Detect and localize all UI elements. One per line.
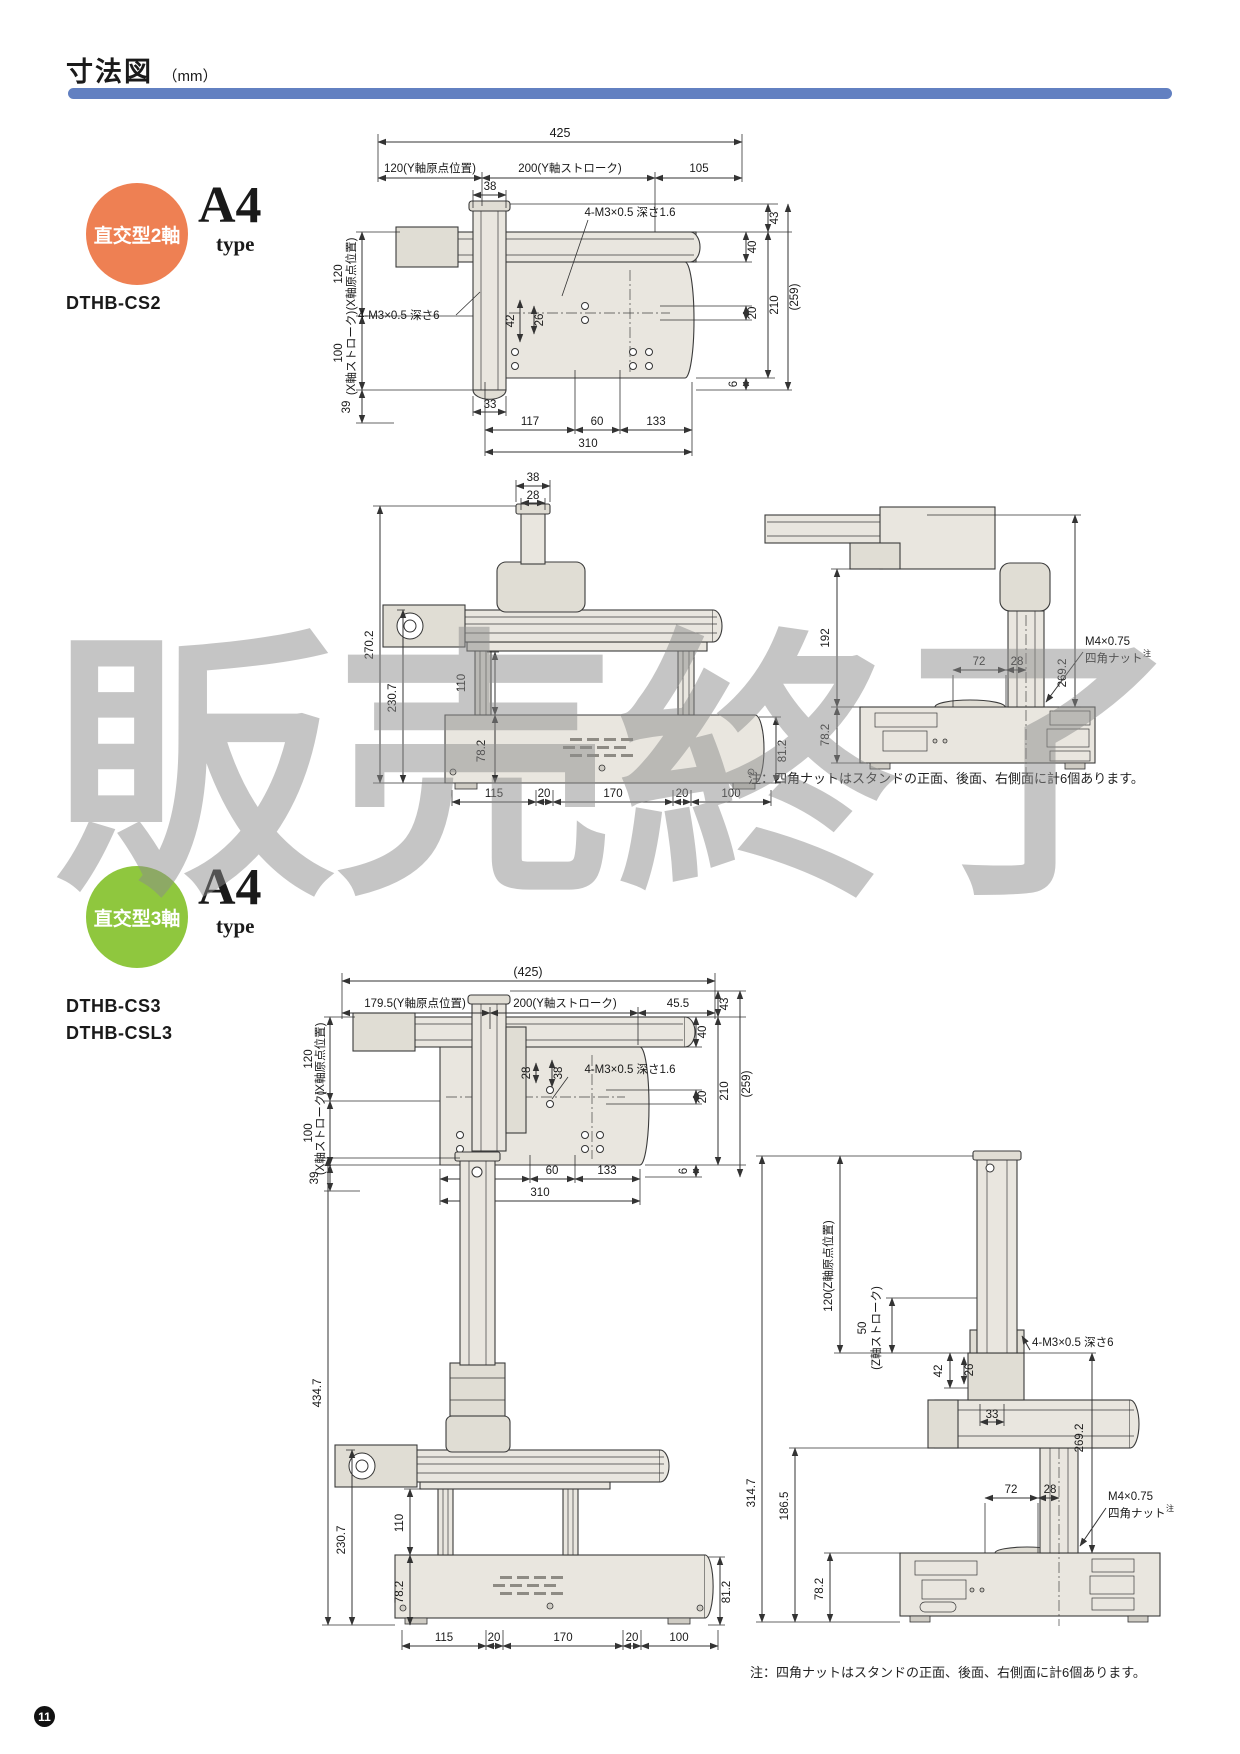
dim-d2-b20b: 20 <box>676 788 689 800</box>
dim-d2-h230: 230.7 <box>387 684 399 713</box>
machine-outline <box>383 504 764 789</box>
paper-size-3axis: A4 <box>198 862 262 914</box>
dim-d4-total: (425) <box>513 965 542 979</box>
machine-outline <box>765 507 1095 769</box>
dim-d6-z-stroke: 50 <box>857 1322 869 1335</box>
badge-3axis-label: 直交型3軸 <box>94 904 181 931</box>
dim-d1-r210: 210 <box>769 295 781 314</box>
dim-d4-w28: 28 <box>521 1067 533 1080</box>
page-title: 寸法図 （mm） <box>66 50 218 89</box>
dim-d6-w28: 28 <box>1044 1484 1057 1496</box>
dim-d2-t38: 38 <box>527 472 540 484</box>
note-square-nut-3axis: 注：四角ナットはスタンドの正面、後面、右側面に計6個あります。 <box>750 1662 1146 1681</box>
dim-d4-y-stroke: 200(Y軸ストローク) <box>513 996 617 1010</box>
dim-d1-col-w: 38 <box>484 181 497 193</box>
paper-size-sub-2axis: type <box>216 234 255 255</box>
dim-d1-v42: 42 <box>505 315 517 328</box>
dim-d3-h192: 192 <box>820 628 832 647</box>
note-d6-nut-ref: 注 <box>1166 1503 1174 1513</box>
note-d3-nut-size: M4×0.75 <box>1085 636 1130 648</box>
model-name-cs2: DTHB-CS2 <box>66 290 161 317</box>
dim-d1-v26: 26 <box>534 314 546 327</box>
dim-d4-y-origin: 179.5(Y軸原点位置) <box>364 996 466 1010</box>
page-number: 11 <box>38 1710 51 1724</box>
dim-d4-end: 45.5 <box>667 998 689 1010</box>
dim-d5-h434: 434.7 <box>312 1379 324 1408</box>
front-view-2axis: 38 28 270.2 230.7 110 78.2 81.2 115 20 1… <box>355 450 795 815</box>
dim-d1-end: 105 <box>689 163 708 175</box>
dim-d6-v42: 42 <box>933 1365 945 1378</box>
dim-d1-x-origin-sub: (X軸原点位置) <box>344 237 358 310</box>
dim-d2-h110: 110 <box>456 674 468 692</box>
dim-d1-r43: 43 <box>769 212 781 225</box>
dim-d5-h81: 81.2 <box>721 1581 733 1603</box>
dim-d1-b60: 60 <box>591 416 604 428</box>
dim-d5-h78: 78.2 <box>394 1581 406 1603</box>
note-square-nut-2axis: 注：四角ナットはスタンドの正面、後面、右側面に計6個あります。 <box>748 768 1144 787</box>
dim-d1-x-origin: 120 <box>333 264 345 283</box>
dim-d6-v26: 26 <box>964 1364 976 1377</box>
note-d4-tap-top: 4-M3×0.5 深さ1.6 <box>584 1062 675 1076</box>
dim-d5-h110: 110 <box>394 1514 406 1532</box>
side-view-3axis: 314.7 186.5 78.2 120(Z軸原点位置) 50 (Z軸ストローク… <box>740 1148 1200 1648</box>
page-title-unit: （mm） <box>163 68 218 85</box>
vent-slots <box>563 738 633 757</box>
dim-d1-b310: 310 <box>578 438 597 450</box>
model-name-csl3: DTHB-CSL3 <box>66 1020 173 1047</box>
dim-d3-h78: 78.2 <box>820 724 832 746</box>
dim-d2-h270: 270.2 <box>364 631 376 660</box>
badge-3axis: 直交型3軸 <box>86 866 188 968</box>
dim-d4-x-origin: 120 <box>303 1049 315 1068</box>
dim-d5-b100: 100 <box>669 1632 688 1644</box>
dim-d4-r43: 43 <box>719 998 731 1011</box>
dim-d1-y-origin: 120(Y軸原点位置) <box>384 161 476 175</box>
dim-d6-h78: 78.2 <box>814 1578 826 1600</box>
dim-d1-edge: 39 <box>341 401 353 414</box>
catalog-page: 寸法図 （mm） 直交型2軸 A4 type DTHB-CS2 直交型3軸 A4… <box>0 0 1240 1754</box>
model-name-cs3: DTHB-CS3 <box>66 993 161 1020</box>
dim-d2-t28: 28 <box>527 490 540 502</box>
dim-d6-h186: 186.5 <box>779 1492 791 1521</box>
dim-d6-z-stroke-sub: (Z軸ストローク) <box>869 1286 883 1370</box>
dim-d5-b20a: 20 <box>488 1632 501 1644</box>
dim-d4-x-origin-sub: (X軸原点位置) <box>313 1022 327 1095</box>
dim-d1-r20: 20 <box>747 307 759 320</box>
dim-d4-r259: (259) <box>741 1070 753 1097</box>
dim-d2-b100: 100 <box>721 788 740 800</box>
machine-outline <box>900 1151 1160 1622</box>
dim-d2-b20a: 20 <box>538 788 551 800</box>
note-d3-nut-ref: 注 <box>1143 648 1151 658</box>
dim-d6-w72: 72 <box>1005 1484 1018 1496</box>
side-view-2axis: 192 78.2 72 28 269.2 M4×0.75 四角ナット 注 <box>745 495 1165 795</box>
dim-d4-r210: 210 <box>719 1081 731 1100</box>
dim-d1-x-stroke-sub: (X軸ストローク) <box>344 311 358 395</box>
dim-d1-b33: 33 <box>484 399 497 411</box>
dim-d2-h78: 78.2 <box>476 740 488 762</box>
dim-d4-w38: 38 <box>553 1067 565 1080</box>
paper-size-sub-3axis: type <box>216 916 255 937</box>
note-d6-nut-name: 四角ナット <box>1108 1507 1166 1520</box>
dim-d2-b170: 170 <box>603 788 622 800</box>
dim-d6-h314: 314.7 <box>746 1479 758 1508</box>
dim-d1-r40: 40 <box>747 241 759 254</box>
dim-d5-b20b: 20 <box>626 1632 639 1644</box>
note-d3-nut-name: 四角ナット <box>1085 652 1143 665</box>
note-d1-tap-left: 4-M3×0.5 深さ6 <box>358 308 440 322</box>
paper-size-2axis: A4 <box>198 180 262 232</box>
dim-d3-w28: 28 <box>1011 656 1024 668</box>
page-title-text: 寸法図 <box>66 57 153 87</box>
note-d6-nut-size: M4×0.75 <box>1108 1491 1153 1503</box>
page-number-badge: 11 <box>34 1706 55 1727</box>
badge-2axis: 直交型2軸 <box>86 183 188 285</box>
dim-d6-b33: 33 <box>986 1409 999 1421</box>
dim-d5-h230: 230.7 <box>336 1526 348 1555</box>
dim-d4-r20: 20 <box>697 1091 709 1104</box>
dim-d1-x-stroke: 100 <box>333 343 345 362</box>
note-d1-tap-top: 4-M3×0.5 深さ1.6 <box>584 205 675 219</box>
vent-slots <box>493 1576 563 1595</box>
dim-d1-r259: (259) <box>789 283 801 310</box>
dim-d1-y-stroke: 200(Y軸ストローク) <box>518 161 622 175</box>
header-accent-bar <box>68 88 1172 99</box>
front-view-3axis: 434.7 230.7 110 78.2 81.2 115 20 170 20 … <box>310 1148 740 1658</box>
dim-d4-x-stroke: 100 <box>303 1123 315 1142</box>
dim-d1-total: 425 <box>550 126 571 140</box>
dim-d4-r40: 40 <box>697 1026 709 1039</box>
note-d6-tap: 4-M3×0.5 深さ6 <box>1032 1335 1114 1349</box>
dim-d6-z-origin: 120(Z軸原点位置) <box>821 1220 835 1312</box>
badge-2axis-label: 直交型2軸 <box>94 221 181 248</box>
plan-view-2axis: 425 120(Y軸原点位置) 200(Y軸ストローク) 105 38 120 … <box>330 120 800 465</box>
dim-d5-b115: 115 <box>435 1632 453 1644</box>
dim-d5-b170: 170 <box>553 1632 572 1644</box>
machine-outline <box>396 201 700 399</box>
dim-d3-w72: 72 <box>973 656 986 668</box>
machine-outline <box>335 1152 713 1624</box>
dim-d1-b117: 117 <box>521 416 539 428</box>
dim-d2-b115: 115 <box>485 788 503 800</box>
dim-d6-h269: 269.2 <box>1074 1424 1086 1453</box>
dim-d1-b133: 133 <box>646 416 665 428</box>
dim-d1-r6: 6 <box>728 381 740 387</box>
